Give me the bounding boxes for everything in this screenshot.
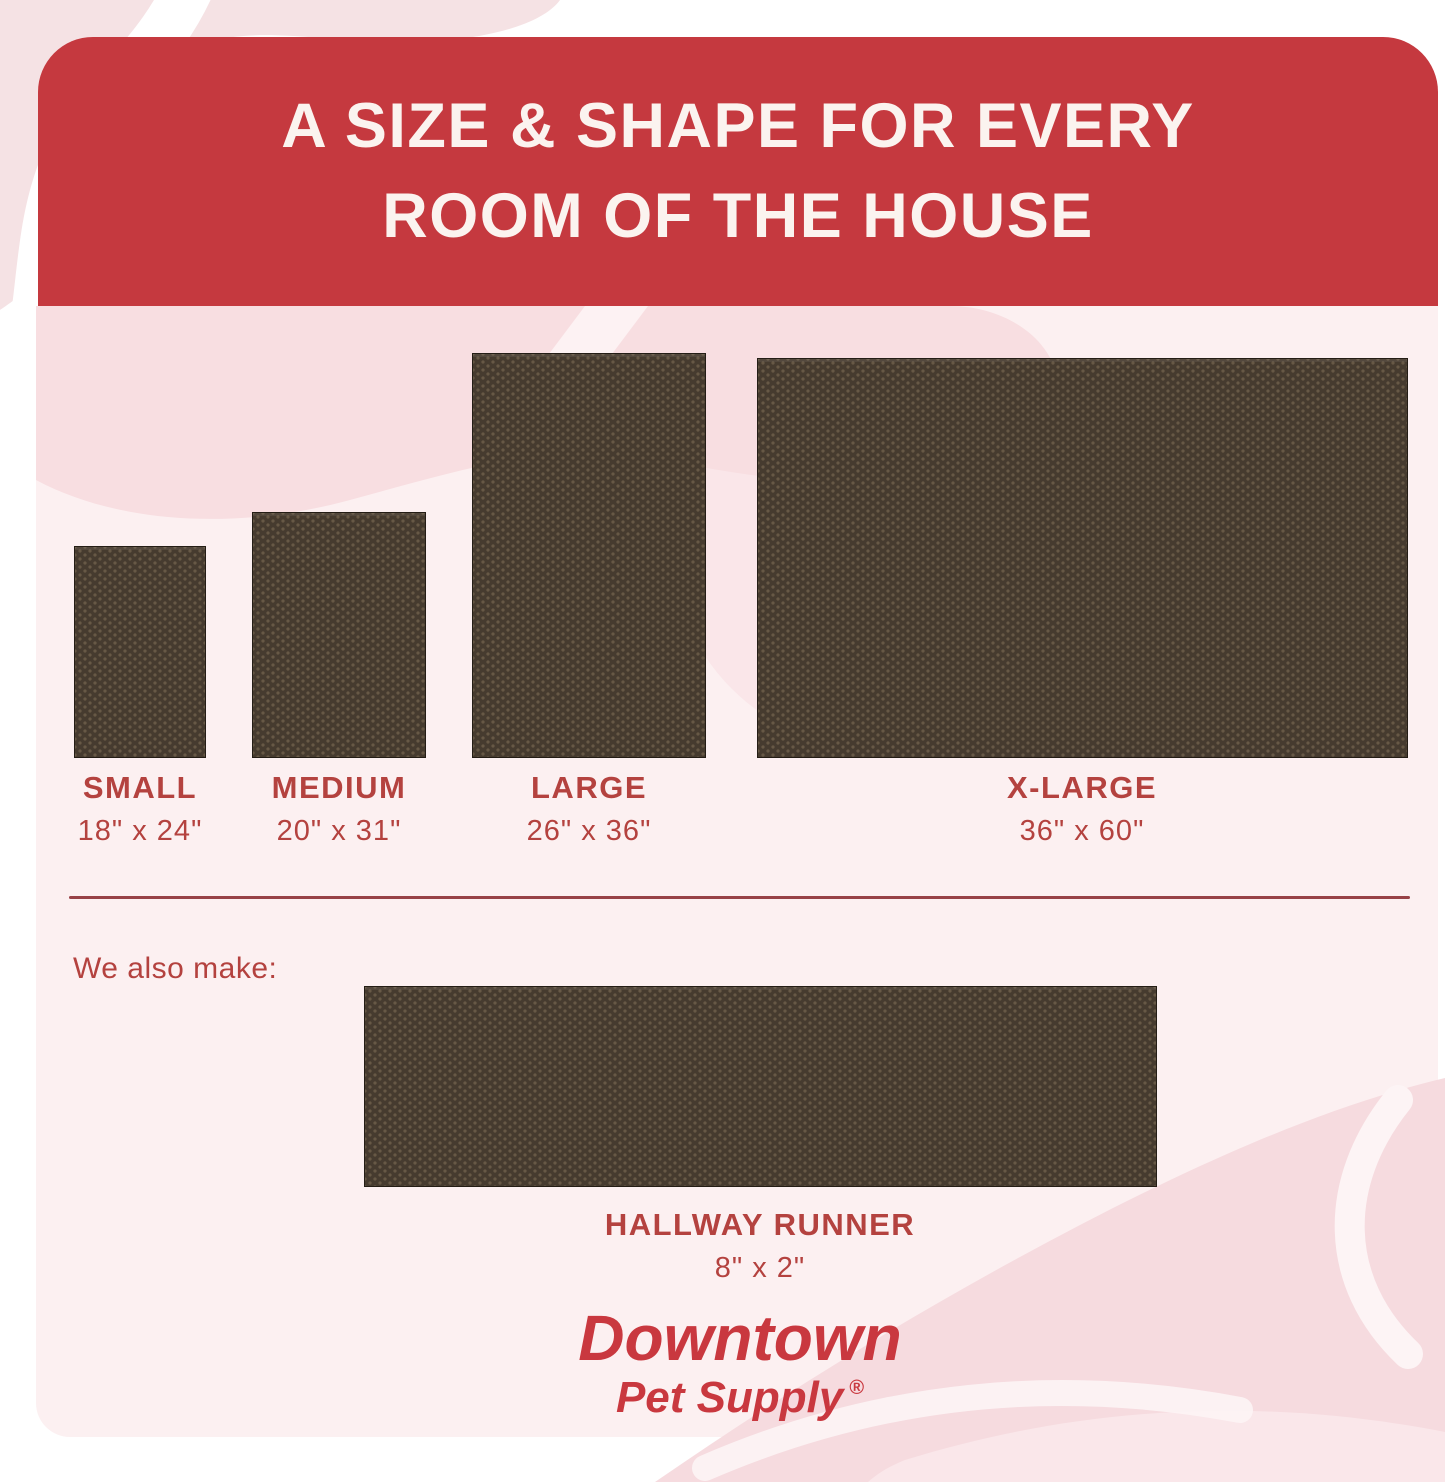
registered-trademark-symbol: ® xyxy=(849,1377,864,1399)
label-runner: HALLWAY RUNNER 8" x 2" xyxy=(600,1207,920,1285)
label-xlarge: X-LARGE 36" x 60" xyxy=(922,770,1242,848)
infographic-page: { "header": { "title_line1": "A SIZE & S… xyxy=(0,0,1445,1482)
label-large-dims: 26" x 36" xyxy=(429,815,749,848)
label-runner-dims: 8" x 2" xyxy=(600,1252,920,1285)
brand-logo-line2: Pet Supply® xyxy=(440,1376,1040,1420)
label-xlarge-name: X-LARGE xyxy=(922,770,1242,806)
label-runner-name: HALLWAY RUNNER xyxy=(600,1207,920,1243)
label-large-name: LARGE xyxy=(429,770,749,806)
section-divider xyxy=(69,896,1410,899)
mat-runner-swatch xyxy=(364,986,1157,1187)
page-title-line1: A SIZE & SHAPE FOR EVERY xyxy=(281,82,1194,171)
mat-medium-swatch xyxy=(252,512,426,758)
brand-logo: Downtown Pet Supply® xyxy=(440,1306,1040,1420)
brand-logo-line2-text: Pet Supply xyxy=(616,1373,843,1422)
page-title-line2: ROOM OF THE HOUSE xyxy=(382,172,1094,261)
also-make-heading: We also make: xyxy=(73,952,277,986)
mat-xlarge-swatch xyxy=(757,358,1408,758)
label-large: LARGE 26" x 36" xyxy=(429,770,749,848)
label-xlarge-dims: 36" x 60" xyxy=(922,815,1242,848)
header-banner: A SIZE & SHAPE FOR EVERY ROOM OF THE HOU… xyxy=(38,37,1438,306)
brand-logo-line1: Downtown xyxy=(440,1306,1040,1370)
mat-small-swatch xyxy=(74,546,206,758)
mat-large-swatch xyxy=(472,353,706,758)
